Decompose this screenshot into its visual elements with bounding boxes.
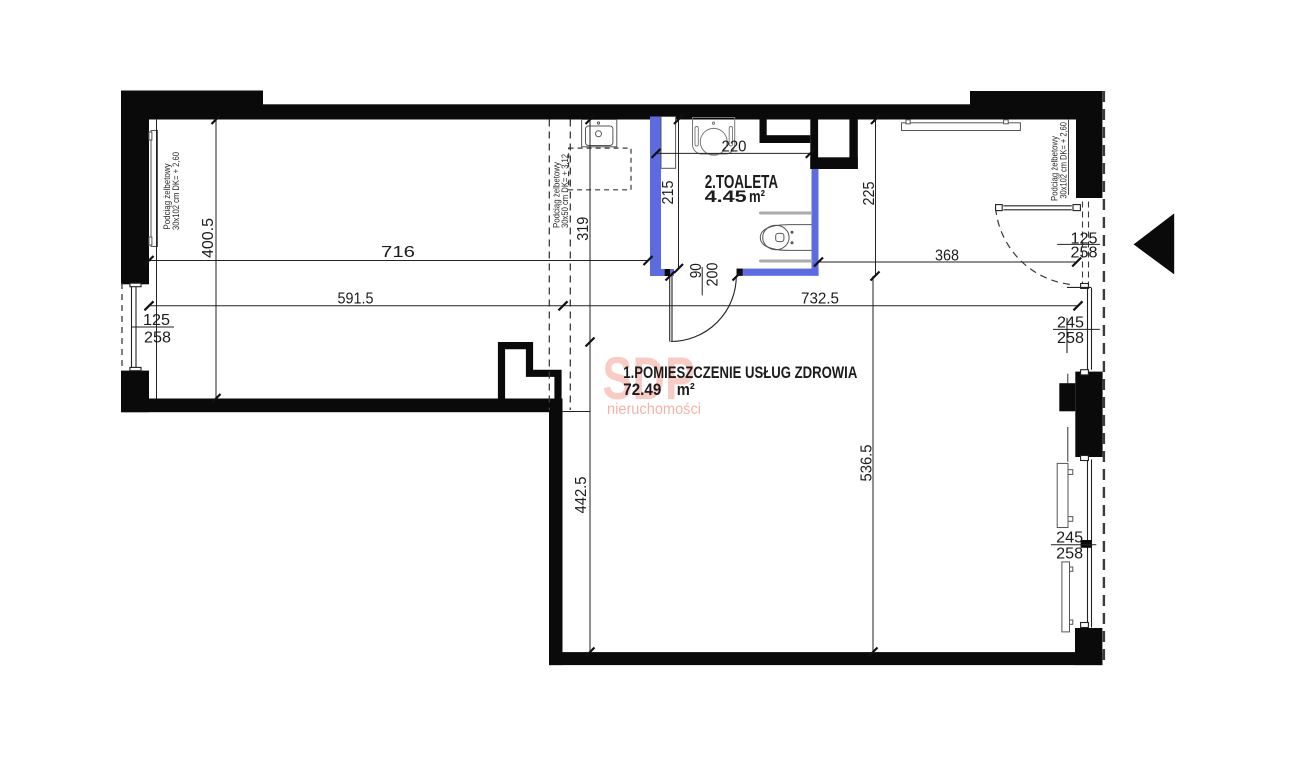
svg-text:200: 200 [705,262,722,286]
svg-text:125: 125 [143,312,170,329]
svg-text:30x102 cm DK= + 2,60: 30x102 cm DK= + 2,60 [1058,122,1068,199]
svg-text:90: 90 [688,263,705,278]
svg-text:400.5: 400.5 [200,218,217,258]
svg-text:215: 215 [660,180,677,204]
svg-text:225: 225 [861,181,878,205]
svg-text:220: 220 [722,139,747,156]
svg-text:30x50 cm DK= + 3,12: 30x50 cm DK= + 3,12 [560,154,570,228]
svg-text:536.5: 536.5 [859,444,876,481]
svg-text:258: 258 [1057,330,1084,347]
svg-text:442.5: 442.5 [573,476,590,513]
svg-text:30x102 cm DK= + 2,60: 30x102 cm DK= + 2,60 [171,152,181,230]
svg-text:245: 245 [1057,315,1084,332]
svg-text:nieruchomości: nieruchomości [607,401,701,418]
svg-text:319: 319 [575,217,592,241]
svg-text:258: 258 [1056,546,1083,563]
svg-text:m²: m² [677,380,695,399]
svg-text:732.5: 732.5 [801,291,839,308]
svg-text:m²: m² [749,187,765,206]
svg-text:72.49: 72.49 [623,380,661,399]
svg-text:368: 368 [935,247,959,264]
svg-text:716: 716 [381,244,415,261]
svg-text:258: 258 [1071,245,1098,262]
svg-text:245: 245 [1056,530,1083,547]
svg-text:591.5: 591.5 [338,291,374,308]
svg-text:4.45: 4.45 [705,187,747,206]
svg-text:258: 258 [144,330,171,347]
